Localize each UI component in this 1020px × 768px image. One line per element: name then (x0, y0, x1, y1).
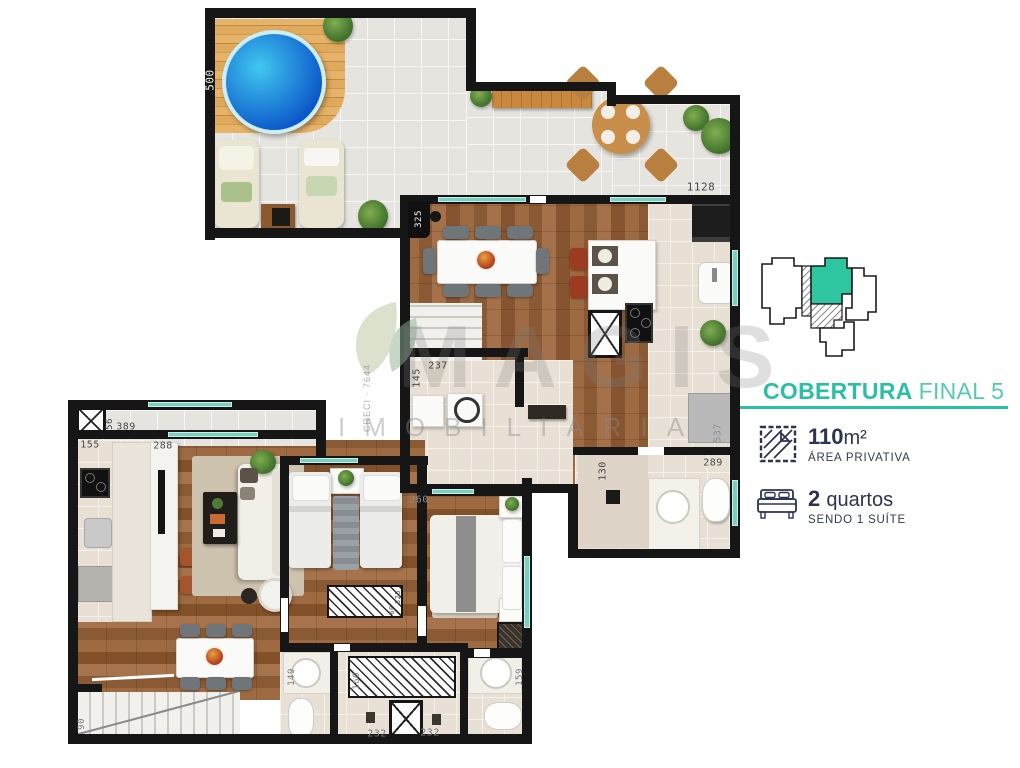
kitchen-counter (112, 442, 152, 622)
bed-stripe (289, 506, 331, 512)
wall (68, 400, 78, 744)
toilet-icon (288, 698, 314, 738)
area-sublabel: ÁREA PRIVATIVA (808, 452, 911, 464)
dining-chair (475, 284, 501, 297)
dining-chair (443, 226, 469, 239)
bed-runner (456, 516, 476, 612)
wall (400, 348, 528, 357)
bed-stripe (360, 506, 402, 512)
door-opening (638, 447, 664, 455)
door-opening (334, 644, 350, 651)
round-sink-icon (480, 657, 512, 689)
bedrooms-value: 2 (808, 486, 820, 511)
floor-drain (432, 714, 441, 725)
laundry-cabinet (412, 395, 444, 427)
round-sink-icon (656, 490, 690, 524)
sofa-pillow (240, 468, 258, 483)
dining-chair (507, 284, 533, 297)
wall (568, 549, 740, 558)
oven-stack (692, 202, 732, 242)
fruit-bowl (477, 251, 495, 269)
burner (630, 328, 640, 338)
bed-icon (756, 488, 798, 524)
wall (466, 8, 476, 90)
window (432, 489, 474, 494)
dining-chair (443, 284, 469, 297)
wall (515, 357, 524, 407)
tray (272, 208, 290, 226)
dining-chair (423, 248, 436, 274)
table-tray (213, 529, 225, 537)
building-location-diagram (756, 246, 886, 358)
wall (460, 648, 532, 658)
dining-chair (507, 226, 533, 239)
window (438, 197, 526, 202)
shower-drain (606, 490, 620, 504)
wall (400, 195, 410, 492)
spec-bedrooms: 2 quartos SENDO 1 SUÍTE (808, 486, 906, 526)
door-stop (430, 211, 441, 222)
watermark-crec: CRECI · 7644 (362, 352, 372, 432)
counter (688, 393, 734, 443)
plate (626, 130, 640, 144)
burner (641, 318, 651, 328)
plate (601, 130, 615, 144)
tv-icon (158, 470, 165, 534)
round-sink-icon (291, 658, 321, 688)
plan-title: COBERTURAFINAL 5 (763, 378, 1004, 405)
door-jamb (408, 202, 430, 238)
area-value: 110 (808, 424, 844, 449)
plate (601, 105, 615, 119)
plant-icon (700, 320, 726, 346)
wardrobe (327, 585, 403, 618)
bedrooms-unit: quartos (826, 489, 893, 511)
area-hatch-icon (758, 424, 798, 464)
bed-pillow (363, 475, 401, 501)
lounger-pillow (219, 146, 254, 170)
hall-bench (528, 405, 566, 419)
window (610, 197, 666, 202)
dining-chair (475, 226, 501, 239)
service-shaft (588, 310, 622, 358)
bedroom-rug (333, 496, 359, 570)
wall (76, 684, 102, 692)
kitchen-sink (84, 518, 112, 548)
dining-chair (206, 677, 226, 690)
washer-drum (454, 397, 480, 423)
cooktop-icon (80, 468, 110, 498)
plan-title-bold: COBERTURA (763, 378, 913, 404)
door-opening (530, 196, 546, 203)
highlighted-unit (811, 258, 852, 304)
stool (570, 276, 587, 298)
window (732, 480, 738, 526)
plant-icon (338, 470, 354, 486)
wall (205, 8, 475, 18)
floorplan-page: CRECI · 7644 MAGIS IMOBILIÁRIA 500112832… (0, 0, 1020, 768)
floor-drain (366, 712, 375, 723)
toilet-icon (702, 478, 730, 522)
burner (630, 308, 640, 318)
hall-closet (348, 656, 456, 698)
fruit-bowl (206, 648, 223, 665)
dining-chair (536, 248, 549, 274)
stairs-lower (78, 692, 240, 738)
dining-chair (180, 624, 200, 637)
pool-icon (222, 30, 326, 134)
table-plant (212, 498, 223, 509)
window (732, 250, 738, 306)
wall (205, 228, 412, 238)
dining-chair (232, 624, 252, 637)
plant-icon (505, 497, 519, 511)
area-unit: m² (844, 427, 867, 449)
elevator-shaft (389, 700, 423, 738)
lounger-pillow (304, 148, 339, 166)
bed-pillow (292, 475, 330, 501)
window (300, 458, 358, 463)
burner (85, 473, 95, 483)
stool (570, 248, 587, 270)
bedrooms-sublabel: SENDO 1 SUÍTE (808, 514, 906, 526)
bed-pillow (502, 566, 522, 610)
plate (626, 105, 640, 119)
accent-divider (740, 406, 1008, 409)
wall (280, 643, 460, 652)
wall (205, 8, 215, 240)
dining-chair (206, 624, 226, 637)
plate (598, 249, 612, 263)
bed-pillow (502, 519, 522, 563)
wall (466, 82, 616, 91)
pouf (241, 588, 257, 604)
toilet-icon (484, 702, 522, 730)
window (168, 432, 258, 437)
burner (96, 482, 106, 492)
wall (330, 643, 338, 742)
plate (598, 277, 612, 291)
dining-chair (180, 677, 200, 690)
faucet-icon (712, 268, 717, 282)
spec-area: 110m² ÁREA PRIVATIVA (808, 424, 911, 464)
lounger-pillow (306, 176, 337, 196)
dining-chair (232, 677, 252, 690)
door-opening (418, 606, 426, 636)
window (524, 556, 530, 628)
sofa-pillow (240, 487, 255, 500)
door-opening (474, 649, 490, 657)
plan-title-regular: FINAL 5 (919, 378, 1005, 404)
lounger-pillow (221, 182, 252, 202)
terrace-table (592, 96, 650, 154)
wall (568, 484, 578, 558)
door-opening (281, 598, 288, 632)
window (148, 402, 232, 407)
wall (607, 95, 740, 104)
table-book (210, 514, 225, 524)
